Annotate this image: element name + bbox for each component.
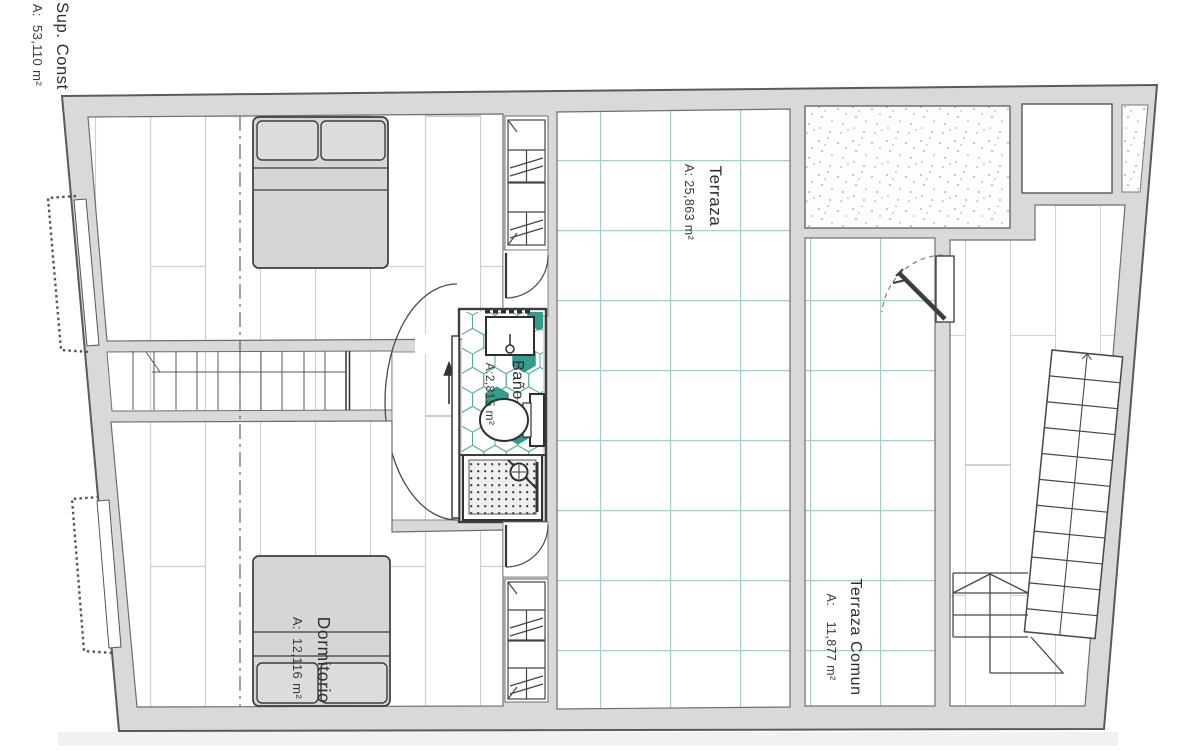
closet-top [505, 116, 548, 250]
gravel-patio [805, 106, 1010, 228]
terraza-comun: Terraza Comun A: 11,877 m² [805, 238, 935, 706]
sink [486, 317, 534, 355]
pillow [257, 121, 318, 160]
title-block-area: A: 53,110 m² [30, 4, 45, 87]
title-block: Sup. Const A: 53,110 m² [30, 2, 71, 90]
room-label-terraza-comun-area: A: 11,877 m² [824, 593, 838, 680]
room-label-bano-area: A:2,815 m² [483, 363, 497, 426]
doorway-top [503, 250, 548, 316]
stair-corridor [107, 351, 392, 411]
title-block-name: Sup. Const [53, 2, 71, 90]
pillow [257, 663, 318, 703]
room-label-terraza-comun-name: Terraza Comun [847, 578, 864, 695]
skylight-opening [1022, 104, 1112, 193]
doorway-bottom [503, 522, 548, 577]
room-label-bano-name: Baño [509, 360, 526, 400]
door-leaf [452, 336, 459, 518]
room-label-terraza-name: Terraza [706, 166, 725, 227]
room-label-terraza-area: A: 25,863 m² [682, 164, 696, 240]
room-label-dormitorio-area: A: 12,116 m² [290, 617, 305, 700]
shower [463, 455, 542, 520]
pillow [321, 121, 385, 160]
closet-bottom [505, 579, 548, 702]
ground-shadow [58, 732, 1118, 746]
bathroom: Baño A:2,815 m² [462, 304, 550, 455]
floor-plan: Dormitorio A: 12,116 m² [0, 0, 1200, 750]
bed-top [253, 117, 388, 268]
terraza: Terraza A: 25,863 m² [557, 109, 790, 709]
room-label-dormitorio-name: Dormitorio [314, 617, 334, 704]
floor-plan-page: Dormitorio A: 12,116 m² [0, 0, 1200, 750]
